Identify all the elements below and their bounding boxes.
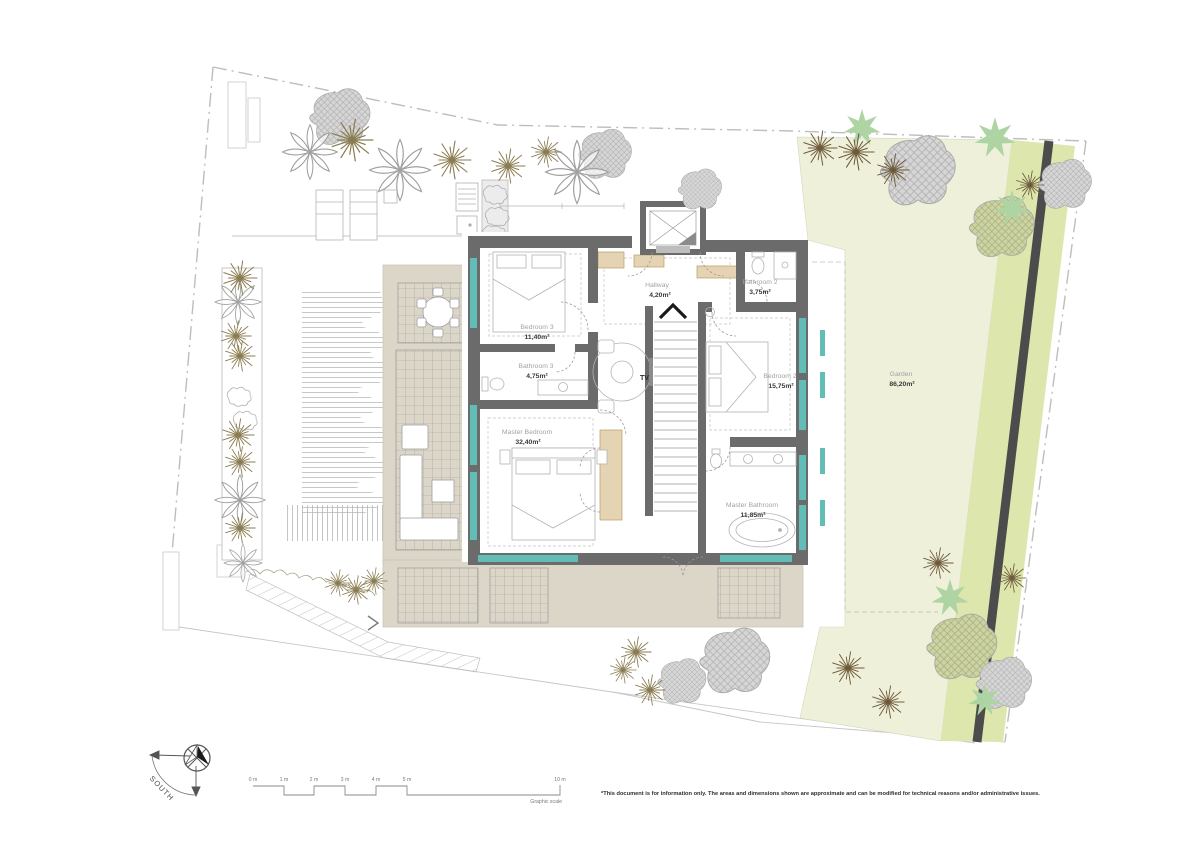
room-hallway-area: 4,20m² (649, 292, 671, 299)
scale-caption: Graphic scale (530, 799, 562, 805)
room-master-bedroom-label: Master Bedroom (502, 429, 553, 436)
scale-tick-6: 10 m (554, 777, 566, 783)
scale-tick-0: 0 m (249, 777, 258, 783)
room-bedroom2-label: Bedroom 2 (763, 373, 796, 380)
bed (493, 252, 565, 332)
room-master-bedroom-area: 32,40m² (515, 439, 541, 446)
stairs (653, 305, 698, 516)
room-bedroom3-area: 11,40m² (525, 334, 551, 341)
room-bedroom2-area: 15,75m² (768, 383, 794, 390)
floor-plan-svg: Bedroom 3 11,40m² Bathroom 3 4,75m² Hall… (0, 0, 1200, 849)
room-hallway-label: Hallway (645, 282, 669, 289)
scale-tick-4: 4 m (372, 777, 381, 783)
tv-label: TV (640, 375, 649, 382)
compass: SOUTH (148, 745, 210, 803)
room-garden-label: Garden (890, 371, 913, 378)
disclaimer-text: *This document is for information only. … (601, 791, 1040, 797)
room-garden-area: 86,20m² (889, 381, 915, 388)
master-bed (500, 448, 607, 540)
elevator (643, 204, 703, 253)
room-bathroom2-label: Bathroom 2 (742, 279, 777, 286)
room-bathroom3-label: Bathroom 3 (518, 363, 553, 370)
room-bedroom3-label: Bedroom 3 (520, 324, 553, 331)
ac-unit (456, 183, 478, 234)
room-master-bathroom-label: Master Bathroom (726, 502, 778, 509)
corridor-window (820, 330, 825, 526)
compass-needle-icon (184, 745, 210, 771)
scale-tick-2: 2 m (310, 777, 319, 783)
room-master-bathroom-area: 11,85m² (741, 512, 767, 519)
scale-tick-5: 5 m (403, 777, 412, 783)
floor-plan-canvas: Bedroom 3 11,40m² Bathroom 3 4,75m² Hall… (0, 0, 1200, 849)
scale-tick-3: 3 m (341, 777, 350, 783)
dimension-line (500, 203, 624, 209)
graphic-scale: 0 m 1 m 2 m 3 m 4 m 5 m 10 m Graphic sca… (249, 777, 566, 805)
sun-lounger (316, 190, 397, 240)
room-bathroom3-area: 4,75m² (526, 373, 548, 380)
room-bathroom2-area: 3,75m² (749, 289, 771, 296)
building (462, 204, 808, 577)
scale-tick-1: 1 m (280, 777, 289, 783)
